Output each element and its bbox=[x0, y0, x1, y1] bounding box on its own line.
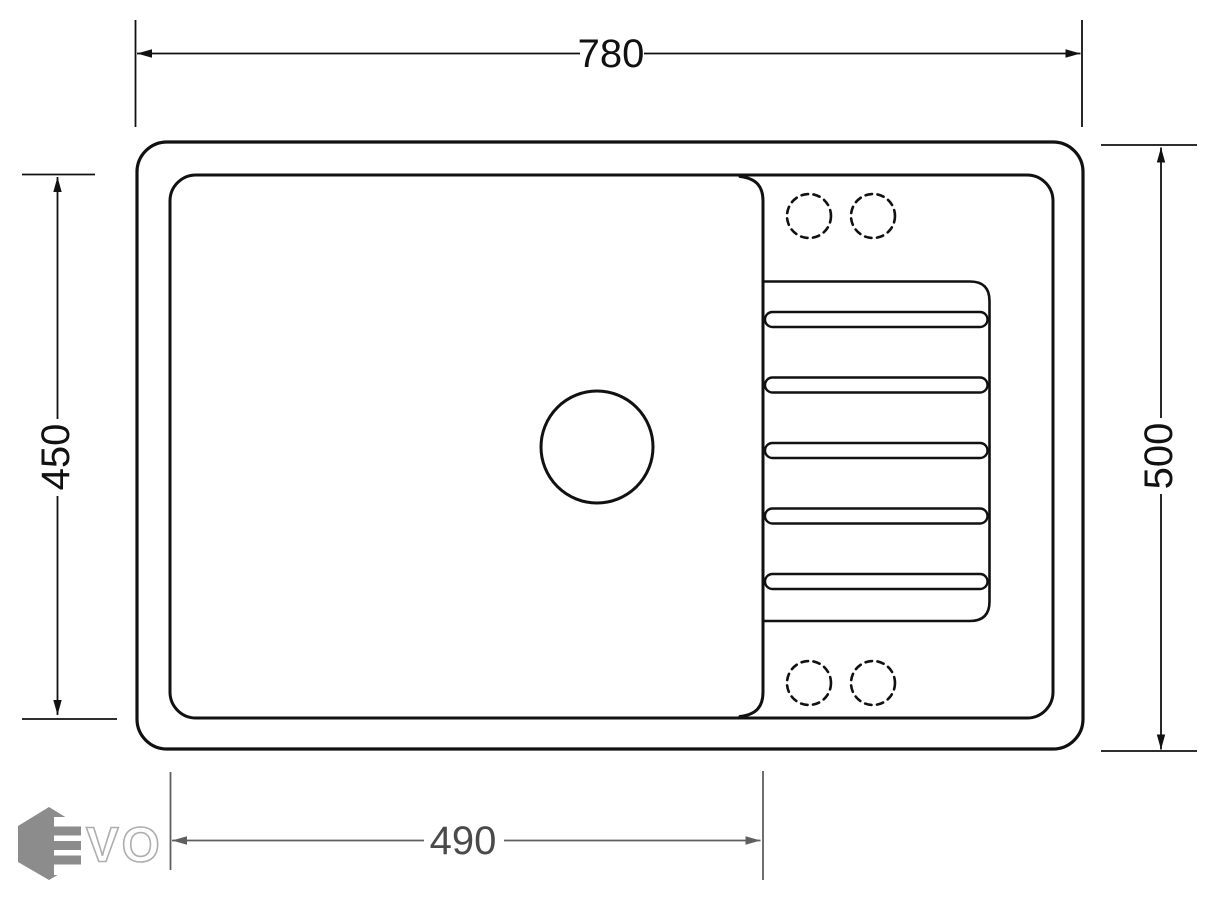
logo-e-bar bbox=[54, 841, 81, 850]
drainer-groove bbox=[765, 443, 988, 458]
drawing-canvas: 780 450 500 490 bbox=[0, 0, 1214, 900]
tap-holes bbox=[787, 194, 895, 705]
drainer-groove bbox=[765, 509, 988, 524]
drainer-grooves bbox=[765, 312, 988, 589]
sink-technical-drawing: 780 450 500 490 bbox=[0, 0, 1214, 900]
drainer-board-outline bbox=[763, 282, 990, 622]
dimension-overall-width: 780 bbox=[136, 20, 1083, 127]
dimension-bowl-depth: 450 bbox=[22, 175, 117, 720]
dimension-label-500: 500 bbox=[1137, 423, 1181, 490]
evo-logo: VO bbox=[18, 807, 163, 880]
bowl-divider-edge bbox=[740, 177, 763, 717]
drainer-groove bbox=[765, 378, 988, 393]
drainer-groove bbox=[765, 312, 988, 327]
drainer-groove bbox=[765, 574, 988, 589]
logo-letter-e-bars bbox=[54, 827, 81, 865]
logo-e-bar bbox=[54, 856, 81, 865]
dimension-label-450: 450 bbox=[34, 424, 78, 491]
tap-hole-icon bbox=[787, 194, 831, 238]
drain-hole bbox=[541, 391, 653, 503]
sink-inner-rim bbox=[170, 175, 1053, 718]
tap-hole-icon bbox=[851, 194, 895, 238]
tap-hole-icon bbox=[787, 661, 831, 705]
dimension-bowl-width: 490 bbox=[171, 771, 764, 880]
dimension-label-490: 490 bbox=[430, 819, 497, 863]
sink-outer-rim bbox=[137, 142, 1083, 749]
dimension-overall-depth: 500 bbox=[1101, 145, 1197, 751]
logo-outlined-letters: VO bbox=[86, 819, 163, 873]
dimension-label-780: 780 bbox=[578, 32, 645, 76]
logo-e-bar bbox=[54, 827, 81, 836]
tap-hole-icon bbox=[851, 661, 895, 705]
